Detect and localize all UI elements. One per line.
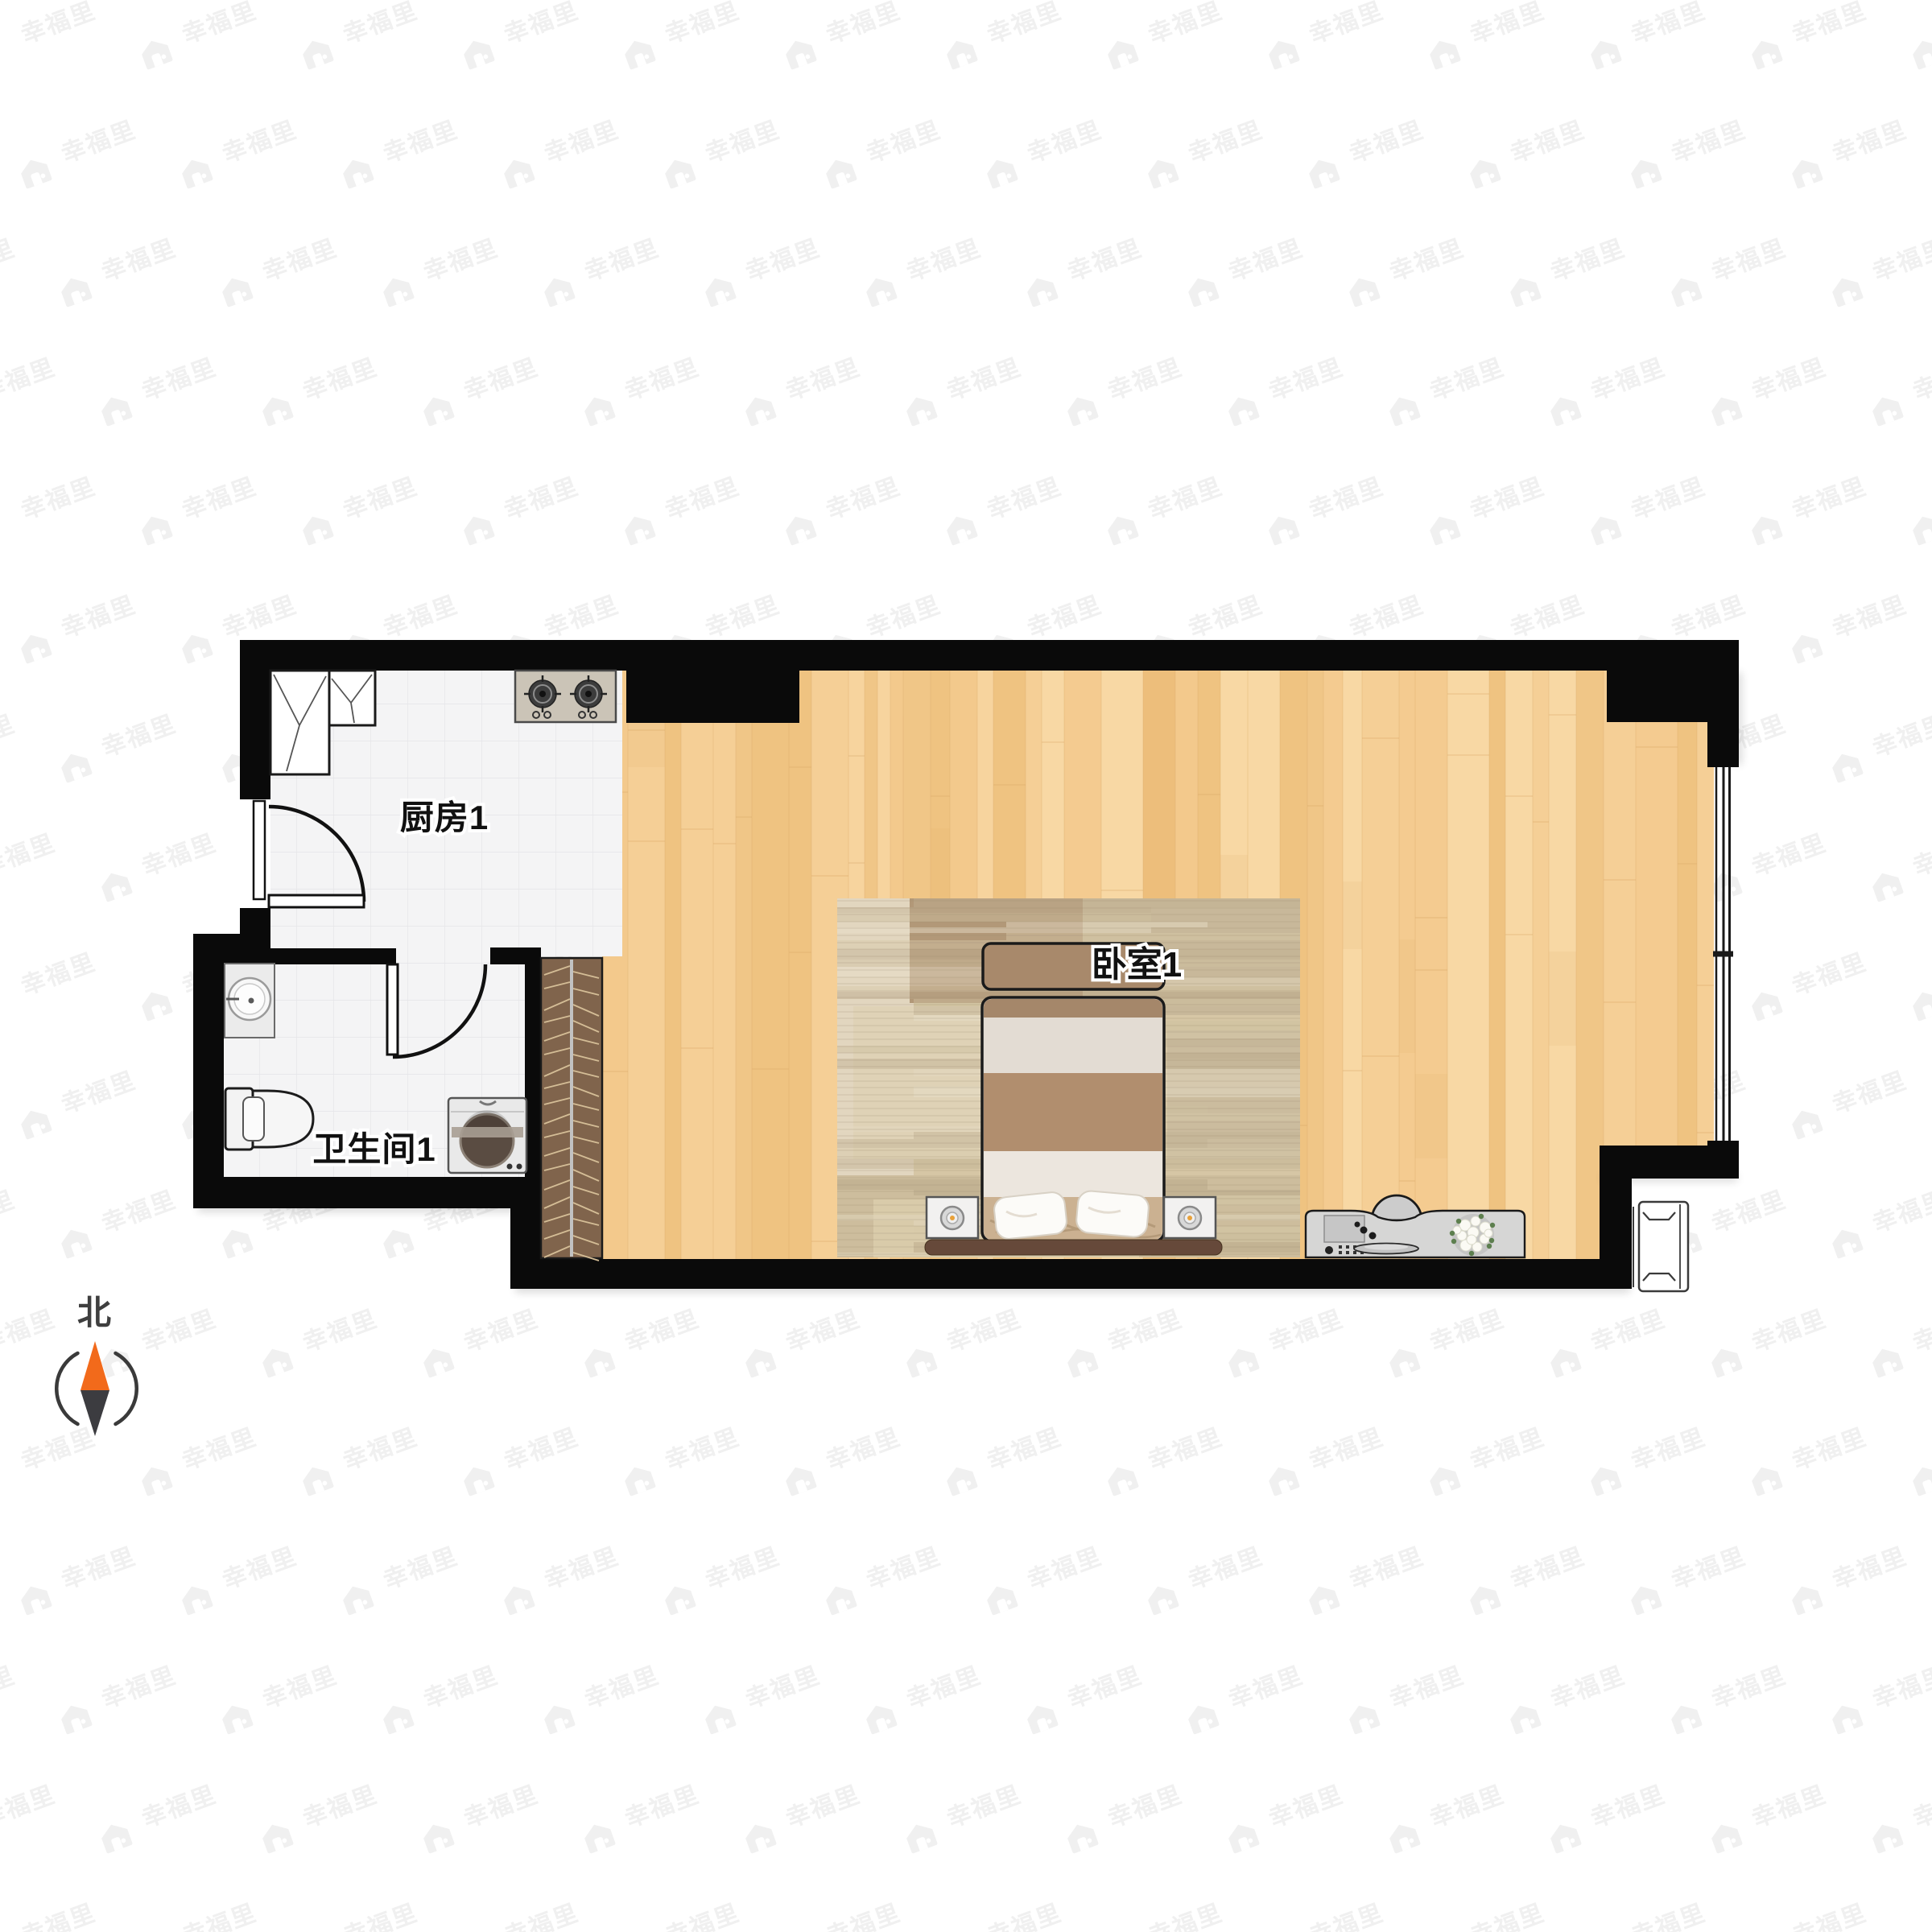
svg-text:北: 北 xyxy=(77,1294,111,1331)
svg-text:卧室1: 卧室1 xyxy=(1092,944,1182,985)
svg-text:厨房1: 厨房1 xyxy=(400,799,489,836)
svg-text:卫生间1: 卫生间1 xyxy=(312,1130,436,1168)
